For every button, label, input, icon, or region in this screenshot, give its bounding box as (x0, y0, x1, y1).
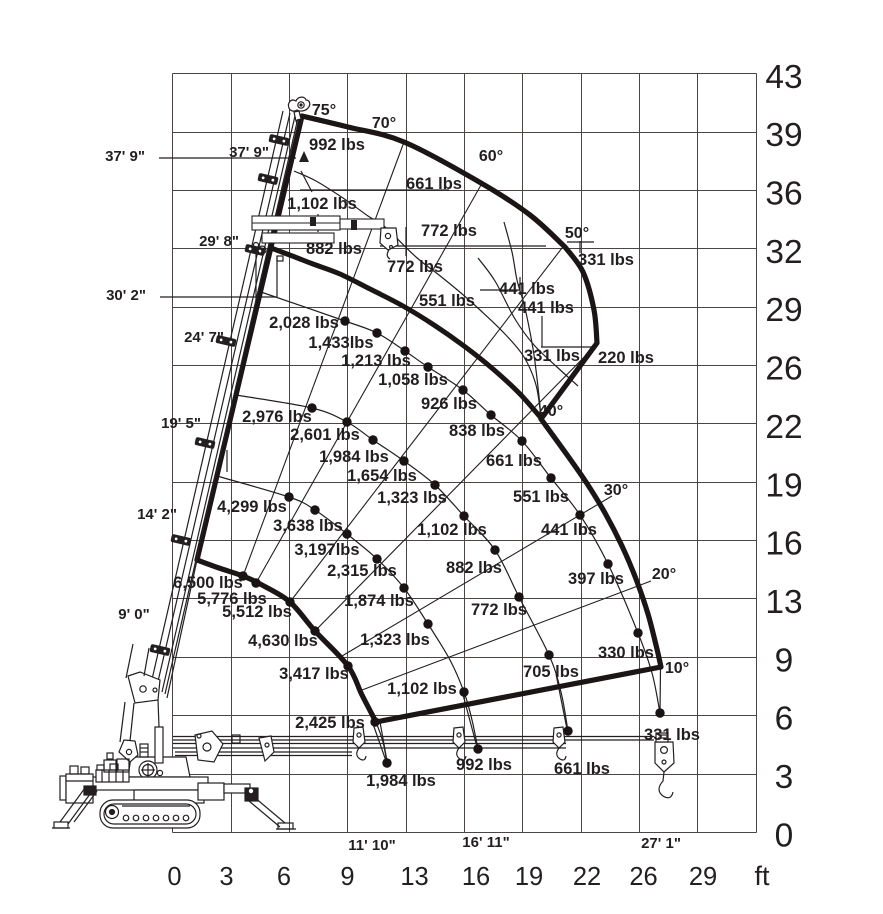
svg-text:926 lbs: 926 lbs (421, 395, 477, 413)
svg-text:75°: 75° (312, 102, 336, 119)
svg-text:19' 5": 19' 5" (161, 415, 201, 432)
svg-text:2,315 lbs: 2,315 lbs (327, 562, 397, 580)
svg-text:16' 11": 16' 11" (462, 834, 509, 851)
svg-text:60°: 60° (479, 148, 503, 165)
svg-text:29: 29 (689, 863, 717, 891)
svg-text:441 lbs: 441 lbs (541, 521, 597, 539)
svg-text:1,433lbs: 1,433lbs (308, 334, 373, 352)
svg-text:441 lbs: 441 lbs (499, 280, 555, 298)
svg-text:70°: 70° (372, 115, 396, 132)
svg-text:9' 0": 9' 0" (118, 606, 150, 623)
svg-text:3: 3 (775, 759, 794, 796)
svg-text:992 lbs: 992 lbs (456, 756, 512, 774)
svg-text:0: 0 (775, 817, 794, 854)
svg-text:1,213 lbs: 1,213 lbs (341, 352, 411, 370)
svg-text:29: 29 (765, 292, 802, 329)
svg-text:2,601 lbs: 2,601 lbs (290, 426, 360, 444)
svg-text:882 lbs: 882 lbs (306, 240, 362, 258)
svg-text:10°: 10° (665, 660, 689, 677)
svg-text:19: 19 (765, 467, 802, 504)
svg-text:992 lbs: 992 lbs (309, 136, 365, 154)
svg-text:331 lbs: 331 lbs (524, 347, 580, 365)
svg-text:14' 2": 14' 2" (137, 506, 177, 523)
svg-text:ft: ft (754, 861, 770, 891)
svg-text:26: 26 (765, 351, 802, 388)
svg-text:2,976 lbs: 2,976 lbs (242, 408, 312, 426)
svg-text:772 lbs: 772 lbs (387, 258, 443, 276)
svg-text:22: 22 (765, 409, 802, 446)
svg-text:3,638 lbs: 3,638 lbs (273, 517, 343, 535)
svg-text:705 lbs: 705 lbs (523, 663, 579, 681)
svg-text:4,630 lbs: 4,630 lbs (248, 632, 318, 650)
svg-text:36: 36 (765, 176, 802, 213)
svg-text:27' 1": 27' 1" (641, 835, 681, 852)
svg-text:29' 8": 29' 8" (199, 233, 239, 250)
svg-text:26: 26 (629, 863, 657, 891)
svg-text:0: 0 (167, 863, 181, 891)
svg-text:19: 19 (515, 863, 543, 891)
svg-text:1,323 lbs: 1,323 lbs (377, 489, 447, 507)
svg-text:16: 16 (462, 863, 490, 891)
svg-text:1,102 lbs: 1,102 lbs (417, 521, 487, 539)
svg-text:1,323 lbs: 1,323 lbs (360, 631, 430, 649)
svg-text:37' 9": 37' 9" (229, 144, 269, 161)
svg-text:551 lbs: 551 lbs (419, 292, 475, 310)
svg-text:397 lbs: 397 lbs (568, 570, 624, 588)
svg-text:1,654 lbs: 1,654 lbs (347, 467, 417, 485)
svg-text:551 lbs: 551 lbs (513, 488, 569, 506)
svg-text:22: 22 (573, 863, 601, 891)
svg-text:13: 13 (400, 863, 428, 891)
svg-text:3,417 lbs: 3,417 lbs (279, 665, 349, 683)
svg-text:331 lbs: 331 lbs (578, 251, 634, 269)
svg-text:1,102 lbs: 1,102 lbs (387, 680, 457, 698)
svg-text:3,197lbs: 3,197lbs (294, 541, 359, 559)
svg-text:50°: 50° (565, 225, 589, 242)
svg-text:16: 16 (765, 526, 802, 563)
svg-text:39: 39 (765, 117, 802, 154)
svg-text:882 lbs: 882 lbs (446, 559, 502, 577)
svg-text:13: 13 (765, 584, 802, 621)
svg-text:6: 6 (775, 701, 794, 738)
svg-text:220 lbs: 220 lbs (598, 349, 654, 367)
svg-text:4,299 lbs: 4,299 lbs (217, 498, 287, 516)
svg-text:661 lbs: 661 lbs (554, 760, 610, 778)
svg-text:2,425 lbs: 2,425 lbs (295, 714, 365, 732)
svg-text:3: 3 (219, 863, 233, 891)
svg-text:43: 43 (765, 59, 802, 96)
svg-text:5,512 lbs: 5,512 lbs (222, 603, 292, 621)
svg-text:6: 6 (277, 863, 291, 891)
svg-text:2,028 lbs: 2,028 lbs (269, 314, 339, 332)
svg-text:30°: 30° (604, 482, 628, 499)
svg-text:772 lbs: 772 lbs (471, 601, 527, 619)
svg-text:1,984 lbs: 1,984 lbs (319, 448, 389, 466)
svg-text:1,984 lbs: 1,984 lbs (366, 772, 436, 790)
svg-text:20°: 20° (652, 566, 676, 583)
svg-text:772 lbs: 772 lbs (421, 222, 477, 240)
svg-text:9: 9 (340, 863, 354, 891)
svg-text:1,058 lbs: 1,058 lbs (378, 371, 448, 389)
svg-text:1,874 lbs: 1,874 lbs (344, 592, 414, 610)
svg-text:661 lbs: 661 lbs (406, 175, 462, 193)
svg-text:30' 2": 30' 2" (106, 287, 146, 304)
svg-text:838 lbs: 838 lbs (449, 422, 505, 440)
svg-text:330 lbs: 330 lbs (598, 644, 654, 662)
svg-text:32: 32 (765, 234, 802, 271)
svg-text:441 lbs: 441 lbs (518, 299, 574, 317)
svg-text:9: 9 (775, 642, 794, 679)
svg-text:24' 7": 24' 7" (184, 329, 224, 346)
svg-text:11' 10": 11' 10" (348, 837, 395, 854)
svg-text:37' 9": 37' 9" (105, 148, 145, 165)
svg-text:1,102 lbs: 1,102 lbs (287, 195, 357, 213)
svg-text:661 lbs: 661 lbs (486, 452, 542, 470)
svg-text:331 lbs: 331 lbs (644, 726, 700, 744)
